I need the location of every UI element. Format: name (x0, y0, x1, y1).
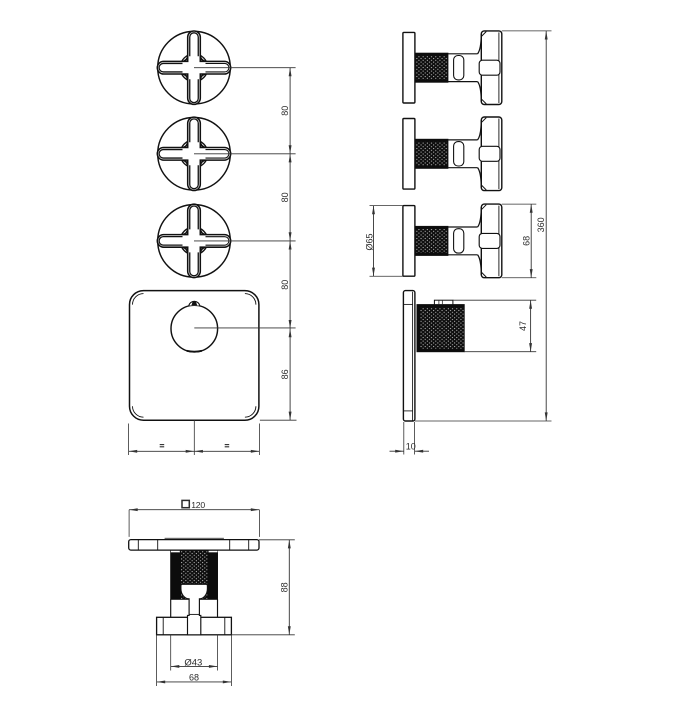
svg-text:Ø65: Ø65 (365, 233, 375, 250)
svg-text:88: 88 (280, 582, 290, 592)
svg-text:68: 68 (521, 236, 531, 246)
svg-text:80: 80 (280, 192, 290, 202)
svg-text:86: 86 (280, 369, 290, 379)
svg-text:360: 360 (536, 217, 546, 232)
svg-text:80: 80 (280, 280, 290, 290)
svg-text:120: 120 (191, 500, 205, 510)
svg-text:10: 10 (406, 441, 416, 451)
svg-text:68: 68 (189, 673, 199, 683)
svg-text:47: 47 (518, 321, 528, 331)
svg-text:80: 80 (280, 106, 290, 116)
svg-text:Ø43: Ø43 (184, 657, 202, 668)
